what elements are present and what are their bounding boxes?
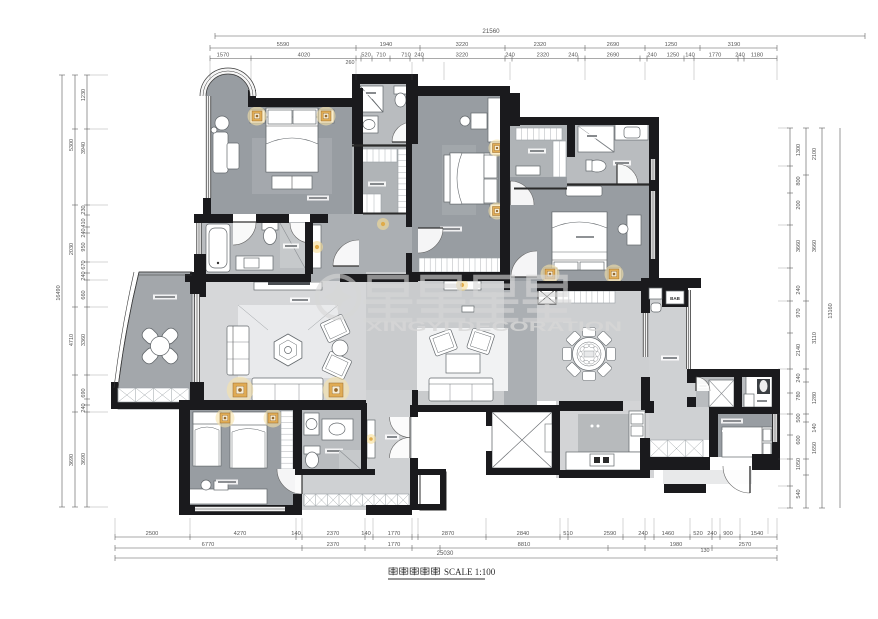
- svg-text:260: 260: [346, 60, 355, 66]
- svg-text:3660: 3660: [812, 240, 818, 252]
- svg-text:240: 240: [505, 53, 515, 59]
- svg-text:1770: 1770: [709, 53, 722, 59]
- svg-text:8810: 8810: [518, 542, 531, 548]
- svg-text:230: 230: [81, 205, 87, 214]
- svg-text:970: 970: [796, 308, 802, 317]
- svg-text:1540: 1540: [751, 531, 764, 537]
- svg-text:240: 240: [638, 531, 648, 537]
- svg-text:2320: 2320: [537, 53, 550, 59]
- svg-text:1280: 1280: [812, 392, 818, 404]
- svg-text:3360: 3360: [81, 334, 87, 346]
- svg-text:4020: 4020: [298, 53, 311, 59]
- svg-text:13160: 13160: [828, 303, 834, 318]
- svg-text:1300: 1300: [796, 144, 802, 156]
- svg-text:2370: 2370: [327, 542, 340, 548]
- svg-text:2100: 2100: [812, 148, 818, 160]
- svg-text:6770: 6770: [202, 542, 215, 548]
- svg-text:520: 520: [693, 531, 703, 537]
- svg-text:4270: 4270: [234, 531, 247, 537]
- svg-text:5590: 5590: [277, 42, 290, 48]
- svg-text:1180: 1180: [751, 53, 763, 59]
- svg-text:1250: 1250: [667, 53, 680, 59]
- svg-text:900: 900: [723, 531, 733, 537]
- svg-text:5300: 5300: [69, 139, 75, 151]
- svg-text:710: 710: [401, 53, 411, 59]
- svg-text:410: 410: [81, 218, 87, 227]
- svg-text:500: 500: [796, 413, 802, 422]
- svg-text:1230: 1230: [81, 89, 87, 101]
- svg-text:240: 240: [735, 53, 745, 59]
- svg-text:2370: 2370: [327, 531, 340, 537]
- svg-text:2590: 2590: [604, 531, 617, 537]
- svg-text:1570: 1570: [217, 53, 230, 59]
- svg-text:3220: 3220: [456, 42, 469, 48]
- svg-text:130: 130: [701, 548, 710, 554]
- svg-text:2570: 2570: [739, 542, 752, 548]
- svg-text:600: 600: [796, 435, 802, 444]
- svg-text:3110: 3110: [812, 332, 818, 344]
- svg-text:140: 140: [685, 53, 695, 59]
- svg-text:BAB: BAB: [670, 296, 680, 301]
- svg-text:3690: 3690: [69, 454, 75, 466]
- svg-text:3660: 3660: [796, 240, 802, 252]
- svg-text:1460: 1460: [662, 531, 675, 537]
- svg-text:1940: 1940: [380, 42, 393, 48]
- svg-text:4710: 4710: [69, 334, 75, 346]
- svg-text:240: 240: [568, 53, 578, 59]
- svg-text:2320: 2320: [534, 42, 547, 48]
- svg-text:25030: 25030: [437, 551, 454, 557]
- svg-text:140: 140: [812, 423, 818, 432]
- svg-text:3190: 3190: [728, 42, 741, 48]
- svg-text:1770: 1770: [388, 542, 401, 548]
- svg-text:16490: 16490: [56, 285, 62, 300]
- svg-text:200: 200: [796, 200, 802, 209]
- svg-text:520: 520: [361, 53, 371, 59]
- svg-text:690: 690: [81, 388, 87, 397]
- svg-text:3940: 3940: [81, 142, 87, 154]
- svg-text:1250: 1250: [665, 42, 678, 48]
- svg-text:950: 950: [81, 242, 87, 251]
- svg-text:2140: 2140: [796, 344, 802, 356]
- svg-text:240: 240: [796, 285, 802, 294]
- svg-text:540: 540: [796, 489, 802, 498]
- svg-text:2500: 2500: [146, 531, 159, 537]
- svg-text:21560: 21560: [482, 28, 500, 35]
- svg-text:2030: 2030: [69, 243, 75, 255]
- svg-text:780: 780: [796, 391, 802, 400]
- svg-text:140: 140: [361, 531, 371, 537]
- svg-text:1650: 1650: [812, 442, 818, 454]
- svg-text:3690: 3690: [81, 453, 87, 465]
- svg-text:710: 710: [376, 53, 386, 59]
- svg-text:240: 240: [647, 53, 657, 59]
- svg-text:2690: 2690: [607, 53, 620, 59]
- svg-text:800: 800: [796, 176, 802, 185]
- svg-text:1770: 1770: [388, 531, 401, 537]
- svg-text:240: 240: [414, 53, 424, 59]
- svg-text:1050: 1050: [796, 458, 802, 470]
- svg-text:660: 660: [81, 290, 87, 299]
- svg-text:XINGYI DECORATION: XINGYI DECORATION: [366, 319, 622, 334]
- svg-text:1980: 1980: [670, 542, 683, 548]
- svg-text:SCALE 1:100: SCALE 1:100: [444, 567, 496, 577]
- svg-text:2840: 2840: [517, 531, 530, 537]
- svg-text:3220: 3220: [456, 53, 469, 59]
- svg-text:240: 240: [796, 373, 802, 382]
- svg-text:2690: 2690: [607, 42, 620, 48]
- svg-text:2870: 2870: [442, 531, 455, 537]
